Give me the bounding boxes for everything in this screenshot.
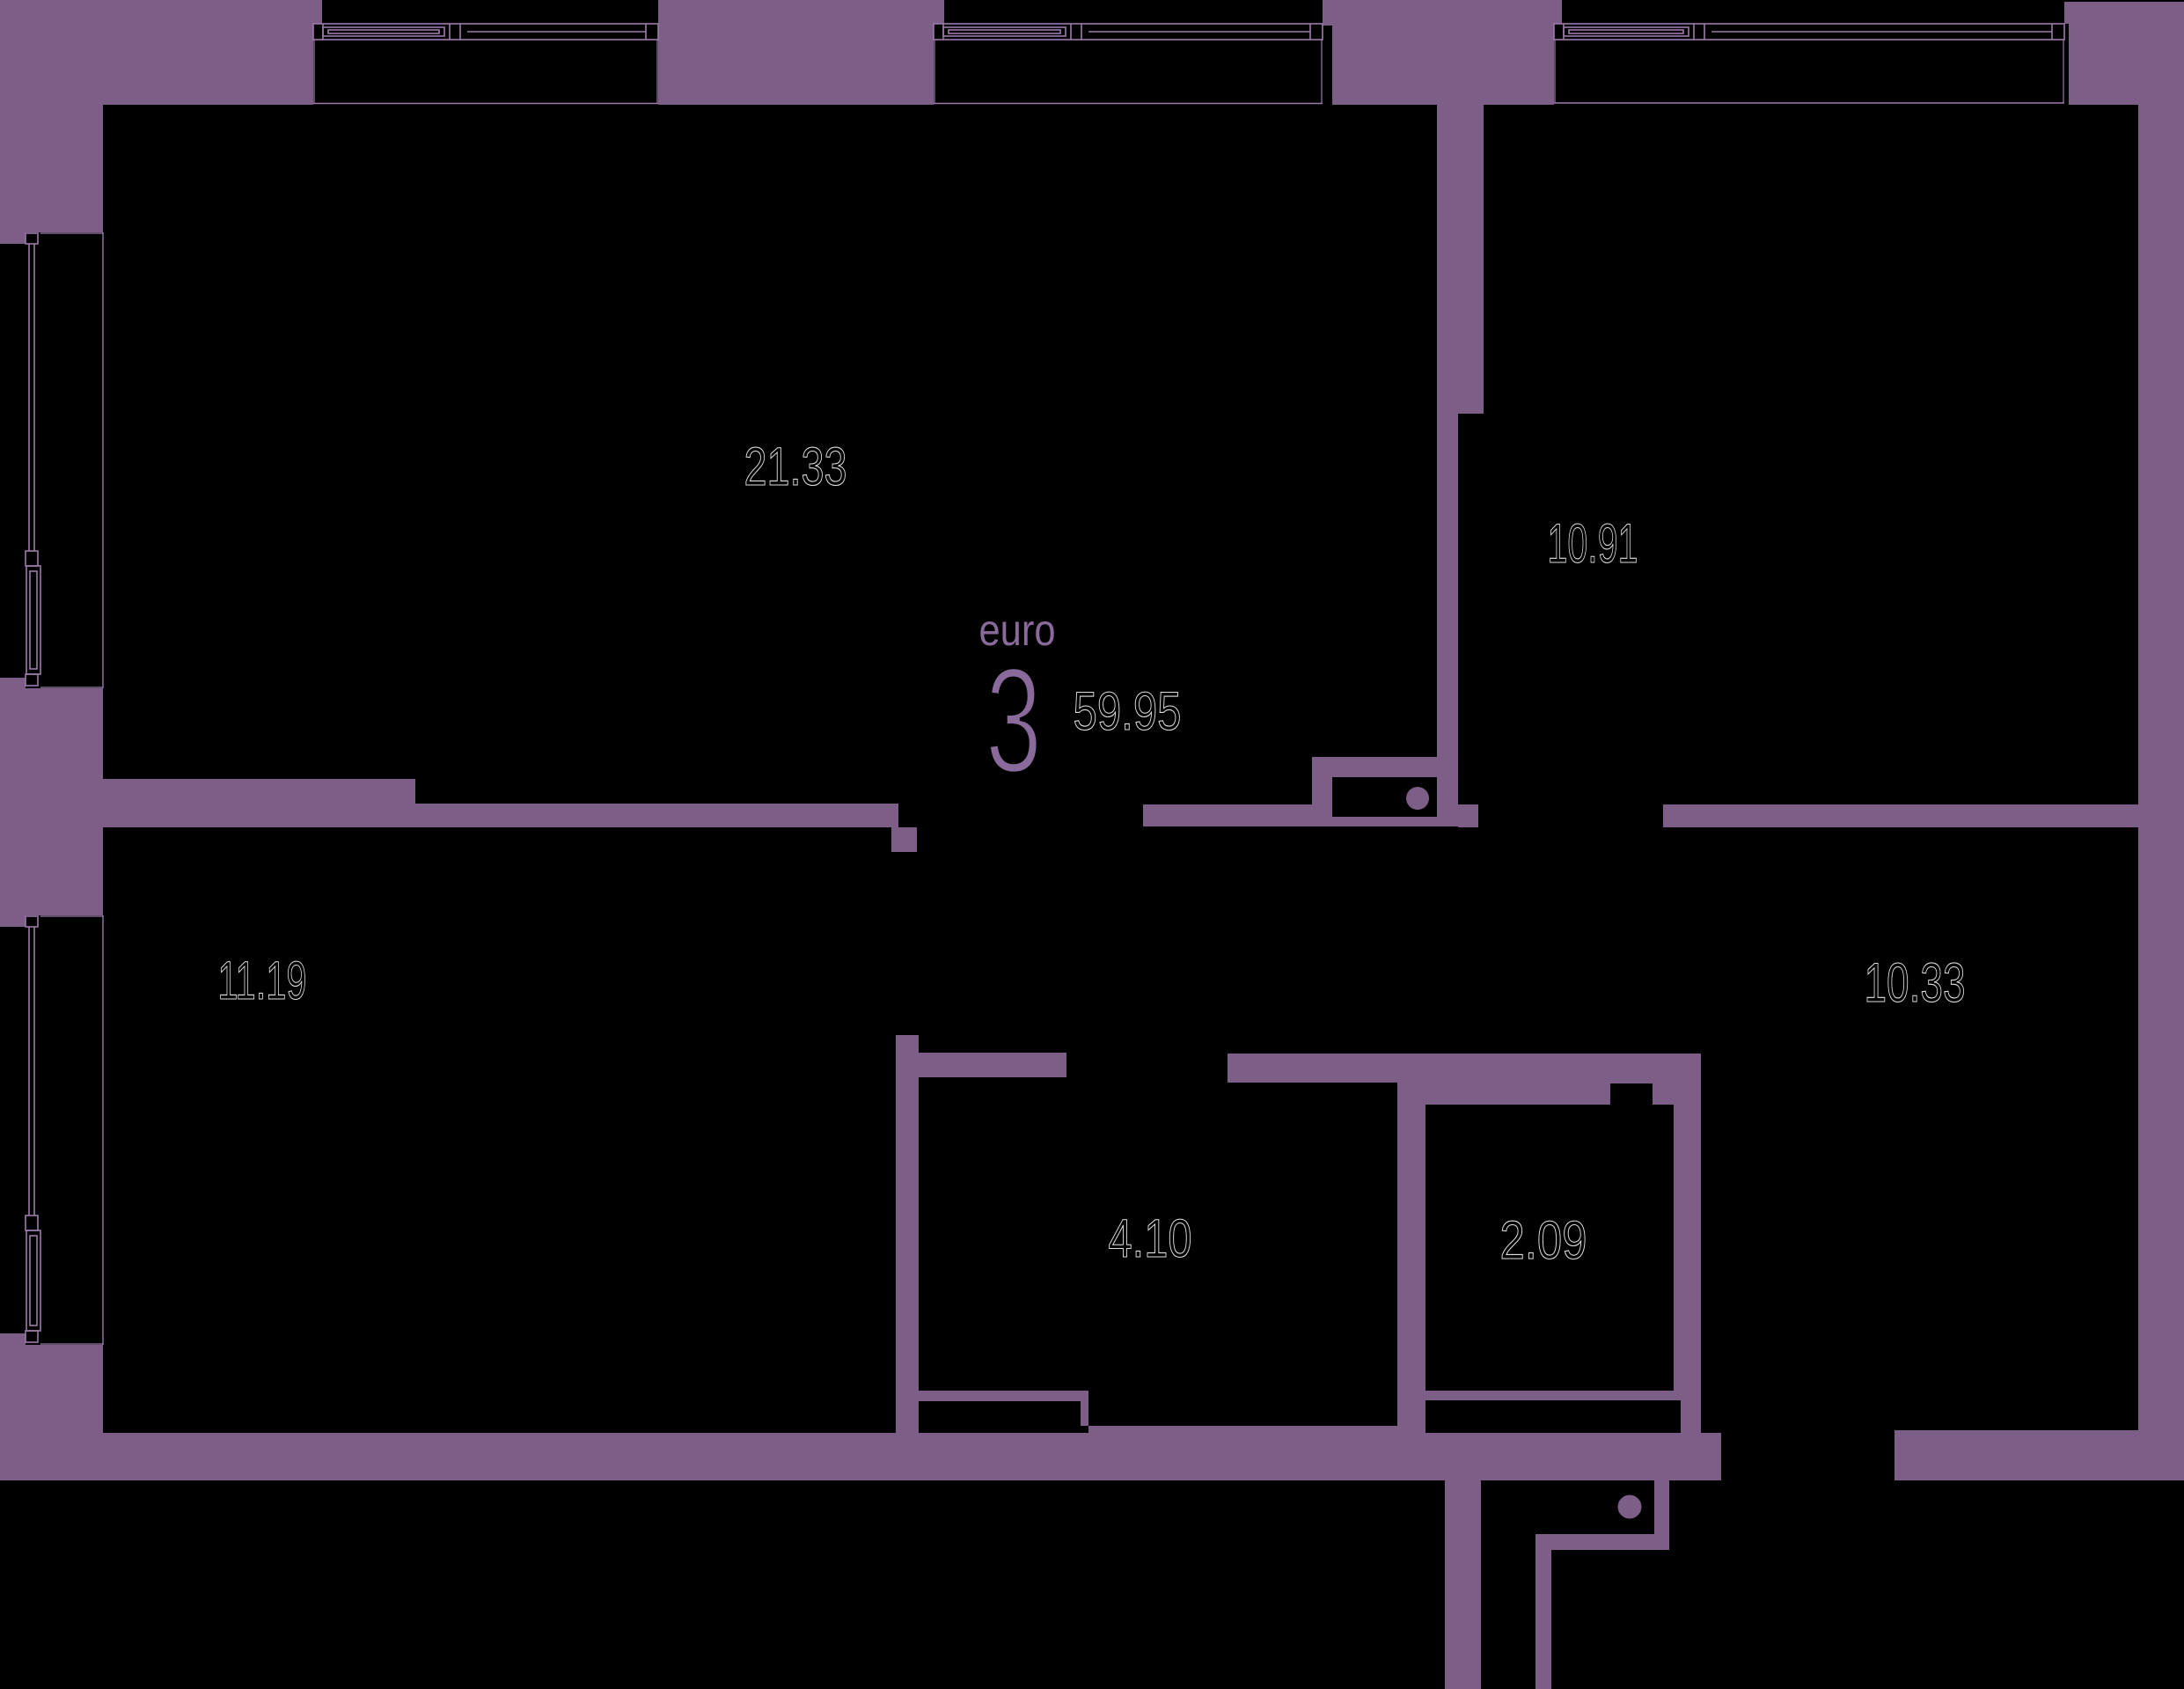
svg-text:59.95: 59.95 (1074, 681, 1182, 741)
svg-text:10.91: 10.91 (1548, 513, 1638, 575)
svg-text:2.09: 2.09 (1500, 1210, 1587, 1270)
svg-text:10.33: 10.33 (1865, 952, 1966, 1014)
svg-text:21.33: 21.33 (744, 437, 847, 496)
svg-text:11.19: 11.19 (218, 951, 307, 1010)
svg-text:3: 3 (986, 637, 1042, 804)
svg-text:4.10: 4.10 (1109, 1208, 1192, 1268)
